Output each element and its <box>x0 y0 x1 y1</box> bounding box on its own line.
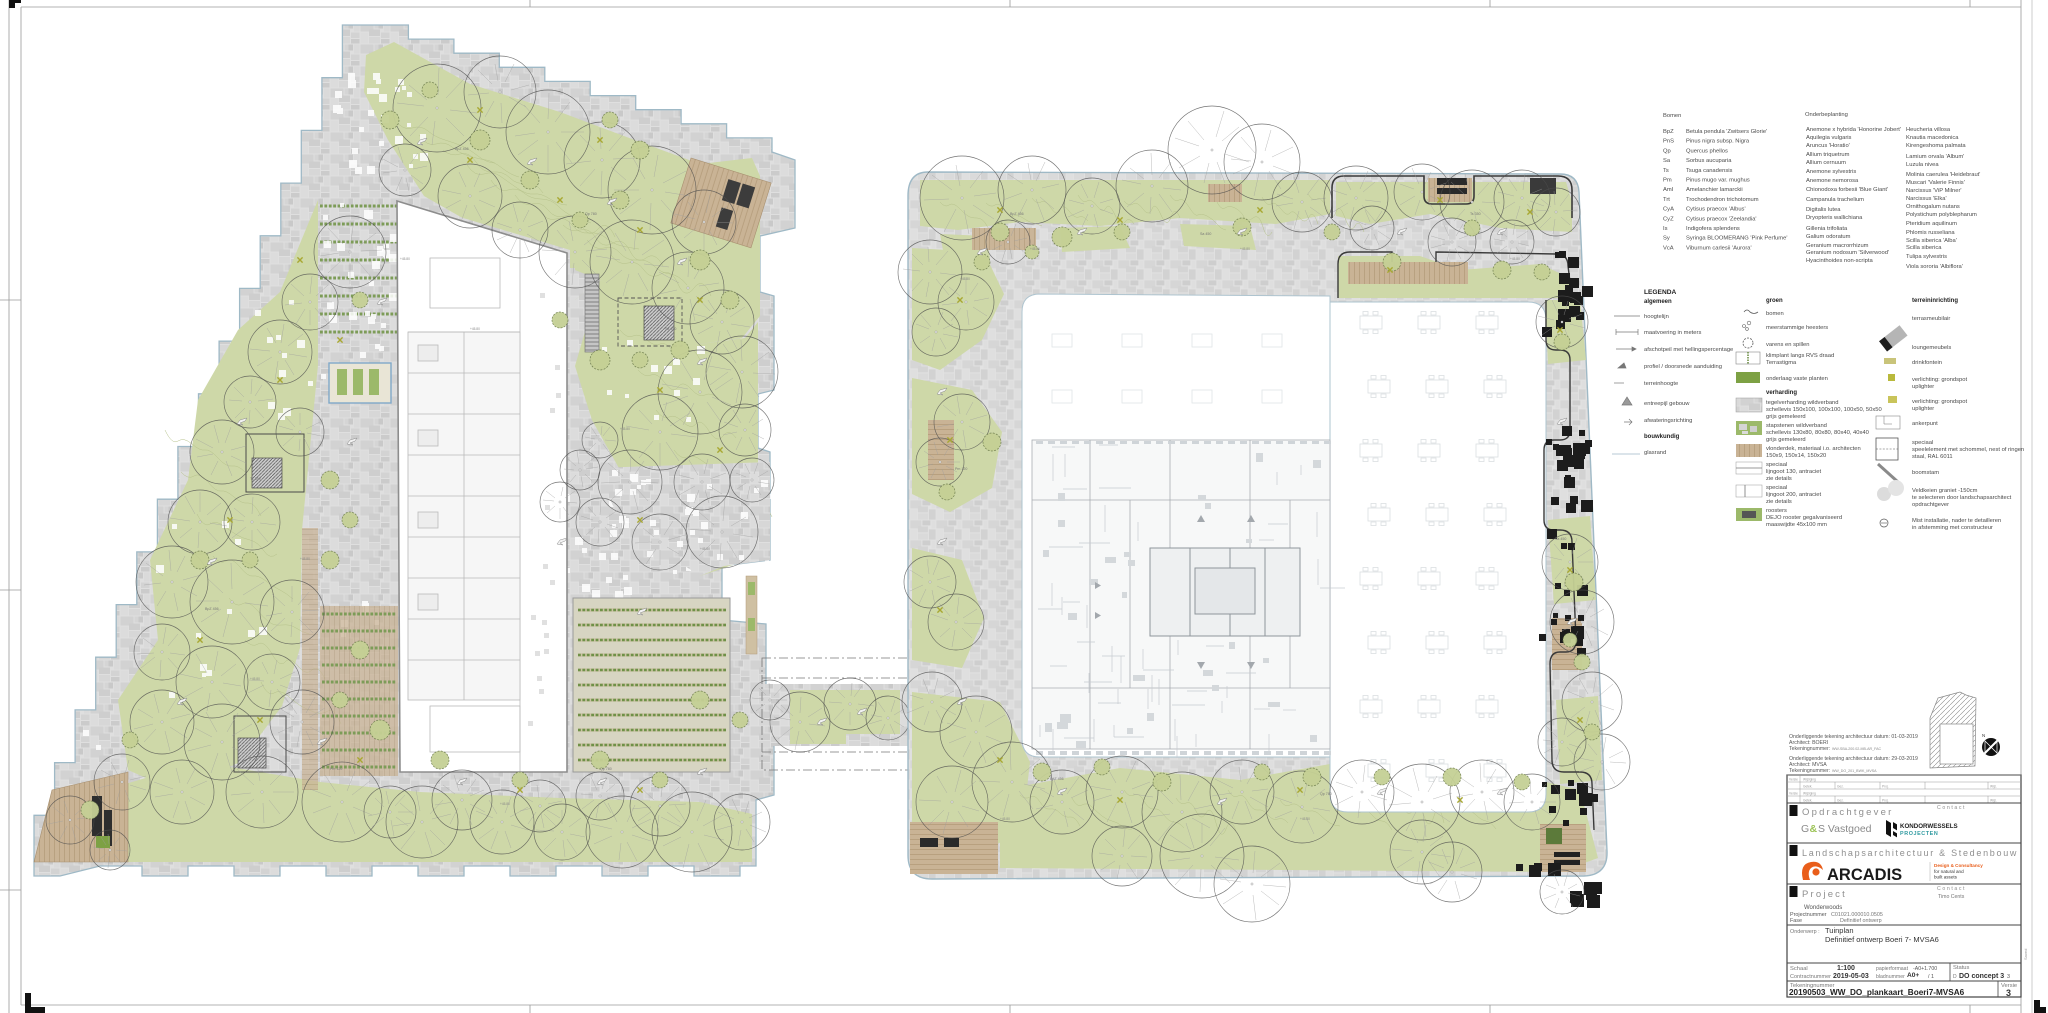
svg-text:Pm 120: Pm 120 <box>330 767 342 771</box>
svg-text:Gez.: Gez. <box>1837 799 1844 803</box>
svg-text:zie details: zie details <box>1766 499 1792 505</box>
svg-text:A0+: A0+ <box>1907 972 1919 979</box>
svg-text:Molinia caerulea 'Heidebraut': Molinia caerulea 'Heidebraut' <box>1906 172 1980 178</box>
svg-text:Getek.: Getek. <box>1803 785 1813 789</box>
svg-text:Fase: Fase <box>1790 918 1802 924</box>
svg-text:Tuinplan: Tuinplan <box>1825 926 1854 935</box>
svg-text:Proj.: Proj. <box>1882 785 1889 789</box>
svg-text:bladnummer: bladnummer <box>1876 974 1905 980</box>
svg-text:Tekeningnummer:: Tekeningnummer: <box>1789 768 1830 774</box>
svg-text:150x9, 150x14, 150x20: 150x9, 150x14, 150x20 <box>1766 453 1826 459</box>
svg-text:Wijziging: Wijziging <box>1803 792 1816 796</box>
svg-text:+45.80: +45.80 <box>400 257 410 261</box>
svg-text:WW_DO_201_BWK_MVSA: WW_DO_201_BWK_MVSA <box>1832 769 1877 773</box>
svg-text:terrasmeubilair: terrasmeubilair <box>1912 316 1950 322</box>
svg-text:Amelanchier lamarckii: Amelanchier lamarckii <box>1686 187 1743 193</box>
svg-text:Wonderwoods: Wonderwoods <box>1804 905 1842 911</box>
svg-text:+45.80: +45.80 <box>500 802 510 806</box>
svg-text:Ts 350: Ts 350 <box>1470 212 1481 216</box>
svg-text:Ornithogalum nutans: Ornithogalum nutans <box>1906 204 1960 210</box>
svg-text:Dryopteris wallichiana: Dryopteris wallichiana <box>1806 215 1863 221</box>
svg-text:AmI: AmI <box>1663 187 1674 193</box>
svg-text:klimplant langs RVS draad: klimplant langs RVS draad <box>1766 353 1834 359</box>
svg-text:Sa: Sa <box>1663 158 1671 164</box>
svg-text:Wijz.: Wijz. <box>1990 785 1997 789</box>
svg-text:Opdrachtgever: Opdrachtgever <box>1802 807 1893 818</box>
svg-text:D: D <box>1953 974 1957 980</box>
svg-text:CyZ: CyZ <box>1663 216 1674 222</box>
svg-text:lijngoot 200, antraciet: lijngoot 200, antraciet <box>1766 492 1821 498</box>
svg-text:Contact: Contact <box>1937 886 1966 892</box>
svg-text:te selecteren door landschapsa: te selecteren door landschapsarchitect <box>1912 495 2012 501</box>
svg-text:verharding: verharding <box>1766 390 1797 396</box>
svg-text:Ts 350: Ts 350 <box>250 477 261 481</box>
svg-text:BpZ 456: BpZ 456 <box>205 607 219 611</box>
svg-text:built assets: built assets <box>1934 875 1958 880</box>
svg-text:Galium odoratum: Galium odoratum <box>1806 234 1851 240</box>
svg-text:papierformaat: papierformaat <box>1876 966 1909 972</box>
svg-text:Timo Cents: Timo Cents <box>1938 894 1965 900</box>
svg-text:Narcissus 'Elka': Narcissus 'Elka' <box>1906 196 1947 202</box>
svg-text:zie details: zie details <box>1766 476 1792 482</box>
svg-text:roosters: roosters <box>1766 508 1787 514</box>
svg-text:N: N <box>1982 733 1985 738</box>
svg-text:Allium cernuum: Allium cernuum <box>1806 160 1846 166</box>
svg-text:Chionodoxa forbesii 'Blue Gian: Chionodoxa forbesii 'Blue Giant' <box>1806 187 1888 193</box>
svg-text:Qp 780: Qp 780 <box>1320 792 1332 796</box>
svg-text:staal, RAL 6011: staal, RAL 6011 <box>1912 454 1953 460</box>
svg-text:Tulipa sylvestris: Tulipa sylvestris <box>1906 254 1947 260</box>
svg-text:+45.80: +45.80 <box>1030 247 1040 251</box>
svg-text:Wijz.: Wijz. <box>1990 799 1997 803</box>
svg-text:speelelement met schommel, nes: speelelement met schommel, nest of ringe… <box>1912 447 2024 453</box>
svg-text:Cytisus praecox 'Albus': Cytisus praecox 'Albus' <box>1686 207 1746 213</box>
svg-text:Sy: Sy <box>1663 236 1670 242</box>
svg-text:Pm: Pm <box>1663 178 1672 184</box>
svg-text:Saved: Saved <box>2023 949 2028 960</box>
svg-text:Phlomis russeliana: Phlomis russeliana <box>1906 230 1955 236</box>
svg-text:terreinhoogte: terreinhoogte <box>1644 381 1678 387</box>
svg-text:Knautia macedonica: Knautia macedonica <box>1906 135 1959 141</box>
svg-text:speciaal: speciaal <box>1912 440 1933 446</box>
svg-text:vlonderdek, materiaal i.o. arc: vlonderdek, materiaal i.o. architecten <box>1766 446 1861 452</box>
svg-text:Mist installatie, nader te det: Mist installatie, nader te detailleren <box>1912 518 2001 524</box>
svg-text:hoogtelijn: hoogtelijn <box>1644 314 1669 320</box>
svg-text:Is: Is <box>1663 226 1668 232</box>
svg-text:Terrastigma: Terrastigma <box>1766 360 1797 366</box>
svg-text:+45.80: +45.80 <box>960 277 970 281</box>
svg-text:Pinus nigra subsp. Nigra: Pinus nigra subsp. Nigra <box>1686 139 1750 145</box>
svg-text:Viola sororia 'Albiflora': Viola sororia 'Albiflora' <box>1906 264 1963 270</box>
svg-text:BpZ: BpZ <box>1663 129 1674 135</box>
svg-text:Quercus phellos: Quercus phellos <box>1686 148 1728 154</box>
svg-text:opdrachtgever: opdrachtgever <box>1912 502 1949 508</box>
svg-text:uplighter: uplighter <box>1912 384 1934 390</box>
svg-text:/ 1: / 1 <box>1928 974 1934 980</box>
svg-text:Geranium macrorrhizum: Geranium macrorrhizum <box>1806 243 1869 249</box>
svg-text:LEGENDA: LEGENDA <box>1644 289 1676 296</box>
svg-text:speciaal: speciaal <box>1766 485 1787 491</box>
svg-text:+45.80: +45.80 <box>700 547 710 551</box>
svg-text:Wijziging: Wijziging <box>1803 778 1816 782</box>
svg-text:20190503_WW_DO_plankaart_Boeri: 20190503_WW_DO_plankaart_Boeri7-MVSA6 <box>1789 988 1965 997</box>
svg-text:&: & <box>1810 823 1818 835</box>
svg-text:Ts: Ts <box>1663 168 1669 174</box>
svg-text:+45.80: +45.80 <box>620 427 630 431</box>
svg-text:tegelverharding wildverband: tegelverharding wildverband <box>1766 400 1839 406</box>
svg-text:Cytisus praecox 'Zeelandia': Cytisus praecox 'Zeelandia' <box>1686 216 1757 222</box>
svg-text:Kirengeshoma palmata: Kirengeshoma palmata <box>1906 143 1966 149</box>
svg-text:G: G <box>1801 823 1809 835</box>
svg-text:Getek.: Getek. <box>1803 799 1813 803</box>
svg-text:Pm 120: Pm 120 <box>955 467 967 471</box>
svg-text:schellevis 130x80, 80x80, 80x4: schellevis 130x80, 80x80, 80x40, 40x40 <box>1766 430 1869 436</box>
svg-text:Gez.: Gez. <box>1837 785 1844 789</box>
svg-text:Project: Project <box>1802 889 1847 900</box>
svg-text:Definitief ontwerp Boeri 7- MV: Definitief ontwerp Boeri 7- MVSA6 <box>1825 935 1939 944</box>
svg-text:Aquilegia vulgaris: Aquilegia vulgaris <box>1806 135 1852 141</box>
svg-text:+45.80: +45.80 <box>1300 817 1310 821</box>
svg-text:Sa 450: Sa 450 <box>1200 232 1211 236</box>
svg-text:schellevis 150x100, 100x100, 1: schellevis 150x100, 100x100, 100x50, 50x… <box>1766 407 1882 413</box>
svg-text:maatvoering in meters: maatvoering in meters <box>1644 330 1701 336</box>
svg-text:entreepijl gebouw: entreepijl gebouw <box>1644 401 1690 407</box>
svg-text:Pinus mugo var. mughus: Pinus mugo var. mughus <box>1686 178 1750 184</box>
svg-text:Pteridium aquilinum: Pteridium aquilinum <box>1906 221 1957 227</box>
svg-text:Allium triquetrum: Allium triquetrum <box>1806 152 1850 158</box>
svg-text:verlichting: grondspot: verlichting: grondspot <box>1912 399 1967 405</box>
svg-text:Indigofera splendens: Indigofera splendens <box>1686 226 1740 232</box>
svg-text:Muscari 'Valerie Finnis': Muscari 'Valerie Finnis' <box>1906 180 1965 186</box>
svg-text:S Vastgoed: S Vastgoed <box>1818 823 1872 835</box>
svg-text:Trochodendron trichotomum: Trochodendron trichotomum <box>1686 197 1759 203</box>
svg-text:Lamium orvala 'Album': Lamium orvala 'Album' <box>1906 154 1964 160</box>
svg-text:+45.80: +45.80 <box>250 677 260 681</box>
svg-text:Qp 780: Qp 780 <box>585 212 597 216</box>
svg-text:ARCADIS: ARCADIS <box>1827 866 1902 884</box>
svg-text:varens en spillen: varens en spillen <box>1766 342 1810 348</box>
svg-text:PROJECTEN: PROJECTEN <box>1900 831 1938 837</box>
svg-text:Landschapsarchitectuur & Ste: Landschapsarchitectuur & Stedenbouw <box>1802 848 2018 858</box>
svg-text:in afstemming met constructeur: in afstemming met constructeur <box>1912 525 1993 531</box>
svg-text:Syringa BLOOMERANG 'Pink Perfu: Syringa BLOOMERANG 'Pink Perfume' <box>1686 236 1787 242</box>
svg-text:for natural and: for natural and <box>1934 869 1964 874</box>
svg-text:2019-05-03: 2019-05-03 <box>1833 973 1869 980</box>
svg-text:boomstam: boomstam <box>1912 470 1939 476</box>
svg-text:Sorbus aucuparia: Sorbus aucuparia <box>1686 158 1732 164</box>
svg-text:profiel / doorsnede aanduiding: profiel / doorsnede aanduiding <box>1644 364 1722 370</box>
svg-text:DO concept 3: DO concept 3 <box>1959 973 2004 980</box>
svg-text:Betula pendula 'Zwitsers Glori: Betula pendula 'Zwitsers Glorie' <box>1686 129 1767 135</box>
svg-text:grijs gemeleerd: grijs gemeleerd <box>1766 414 1806 420</box>
svg-text:Bomen: Bomen <box>1663 113 1681 119</box>
svg-text:loungemeubels: loungemeubels <box>1912 345 1951 351</box>
svg-text:afschotpeil met hellingspercen: afschotpeil met hellingspercentage <box>1644 347 1733 353</box>
svg-text:Tekeningnummer:: Tekeningnummer: <box>1789 746 1830 752</box>
svg-text:DEJO rooster gegalvaniseerd: DEJO rooster gegalvaniseerd <box>1766 515 1842 521</box>
svg-text:Anemone sylvestris: Anemone sylvestris <box>1806 169 1856 175</box>
svg-text:bouwkundig: bouwkundig <box>1644 434 1680 440</box>
svg-text:Digitalis lutea: Digitalis lutea <box>1806 207 1841 213</box>
svg-text:VcA: VcA <box>1663 245 1674 251</box>
svg-text:Hyacinthoides non-scripta: Hyacinthoides non-scripta <box>1806 258 1873 264</box>
svg-text:Onderbeplanting: Onderbeplanting <box>1805 112 1848 118</box>
svg-text:Geranium nodosum 'Silverwood': Geranium nodosum 'Silverwood' <box>1806 250 1889 256</box>
svg-text:Sa 450: Sa 450 <box>665 327 676 331</box>
svg-text:onderlaag vaste planten: onderlaag vaste planten <box>1766 376 1828 382</box>
svg-text:verlichting: grondspot: verlichting: grondspot <box>1912 377 1967 383</box>
svg-text:Campanula trachelium: Campanula trachelium <box>1806 197 1864 203</box>
svg-text:terreininrichting: terreininrichting <box>1912 298 1958 304</box>
svg-text:Narcissus 'ViP Milner': Narcissus 'ViP Milner' <box>1906 188 1961 194</box>
svg-text:Contractnummer: Contractnummer <box>1790 974 1831 980</box>
svg-text:BpZ 456: BpZ 456 <box>1010 212 1024 216</box>
svg-text:Scilla siberica: Scilla siberica <box>1906 245 1942 251</box>
svg-text:Trt: Trt <box>1663 197 1670 203</box>
svg-text:Veldkeien graniet -150cm: Veldkeien graniet -150cm <box>1912 488 1978 494</box>
svg-text:1:100: 1:100 <box>1837 965 1855 972</box>
svg-text:grijs gemeleerd: grijs gemeleerd <box>1766 437 1806 443</box>
svg-text:Qp 780: Qp 780 <box>600 767 612 771</box>
svg-text:KONDORWESSELS: KONDORWESSELS <box>1900 823 1958 830</box>
svg-text:+45.80: +45.80 <box>1510 257 1520 261</box>
svg-text:meerstammige heesters: meerstammige heesters <box>1766 325 1828 331</box>
svg-text:afwateringsrichting: afwateringsrichting <box>1644 418 1692 424</box>
svg-text:lijngoot 130, antraciet: lijngoot 130, antraciet <box>1766 469 1821 475</box>
svg-text:+45.80: +45.80 <box>1000 817 1010 821</box>
svg-text:Heucheria villosa: Heucheria villosa <box>1906 127 1951 133</box>
svg-text:Anemone nemorosa: Anemone nemorosa <box>1806 178 1859 184</box>
svg-text:Viburnum carlesii 'Aurora': Viburnum carlesii 'Aurora' <box>1686 245 1752 251</box>
svg-text:groen: groen <box>1766 298 1783 304</box>
svg-text:Qp: Qp <box>1663 148 1671 154</box>
svg-text:Gillenia trifoliata: Gillenia trifoliata <box>1806 226 1848 232</box>
svg-text:drinkfontein: drinkfontein <box>1912 360 1942 366</box>
svg-text:Versie: Versie <box>1789 778 1798 782</box>
svg-text:Versie: Versie <box>1789 792 1798 796</box>
svg-text:Scilla siberica 'Alba': Scilla siberica 'Alba' <box>1906 238 1957 244</box>
svg-text:algemeen: algemeen <box>1644 299 1672 305</box>
svg-text:CyA: CyA <box>1663 207 1674 213</box>
svg-text:+45.80: +45.80 <box>1240 247 1250 251</box>
svg-text:Schaal: Schaal <box>1790 966 1808 972</box>
svg-text:Contact: Contact <box>1937 805 1966 811</box>
svg-text:Status: Status <box>1953 965 1970 971</box>
svg-text:Sa 450: Sa 450 <box>1555 537 1566 541</box>
svg-text:Polystichum polyblepharum: Polystichum polyblepharum <box>1906 212 1977 218</box>
svg-text:speciaal: speciaal <box>1766 462 1787 468</box>
svg-text:Onderwerp :: Onderwerp : <box>1790 929 1820 935</box>
svg-text:Proj.: Proj. <box>1882 799 1889 803</box>
svg-text:+45.80: +45.80 <box>470 327 480 331</box>
svg-text:maaswijdte 45x100 mm: maaswijdte 45x100 mm <box>1766 522 1827 528</box>
svg-text:+45.80: +45.80 <box>300 557 310 561</box>
svg-text:stapstenen wildverband: stapstenen wildverband <box>1766 423 1827 429</box>
svg-text:3: 3 <box>2006 988 2011 998</box>
svg-text:BpZ 456: BpZ 456 <box>1050 777 1064 781</box>
svg-text:Luzula nivea: Luzula nivea <box>1906 162 1939 168</box>
svg-text:Anemone x hybrida 'Honorine Jo: Anemone x hybrida 'Honorine Jobert' <box>1806 127 1901 133</box>
svg-text:3: 3 <box>2007 974 2010 980</box>
svg-text:BpZ 456: BpZ 456 <box>455 147 469 151</box>
svg-text:Tsuga canadensis: Tsuga canadensis <box>1686 168 1733 174</box>
svg-text:Design & Consultancy: Design & Consultancy <box>1934 863 1983 868</box>
svg-text:uplighter: uplighter <box>1912 406 1934 412</box>
svg-text:bomen: bomen <box>1766 311 1784 317</box>
svg-text:glasrand: glasrand <box>1644 450 1666 456</box>
svg-text:ankerpunt: ankerpunt <box>1912 421 1938 427</box>
svg-text:Definitief ontwerp: Definitief ontwerp <box>1840 918 1882 924</box>
svg-text:PnS: PnS <box>1663 139 1674 145</box>
svg-text:WW-SBA-200.02-MB-AR_FAC: WW-SBA-200.02-MB-AR_FAC <box>1832 747 1881 751</box>
svg-text:Aruncus 'Horatio': Aruncus 'Horatio' <box>1806 143 1850 149</box>
